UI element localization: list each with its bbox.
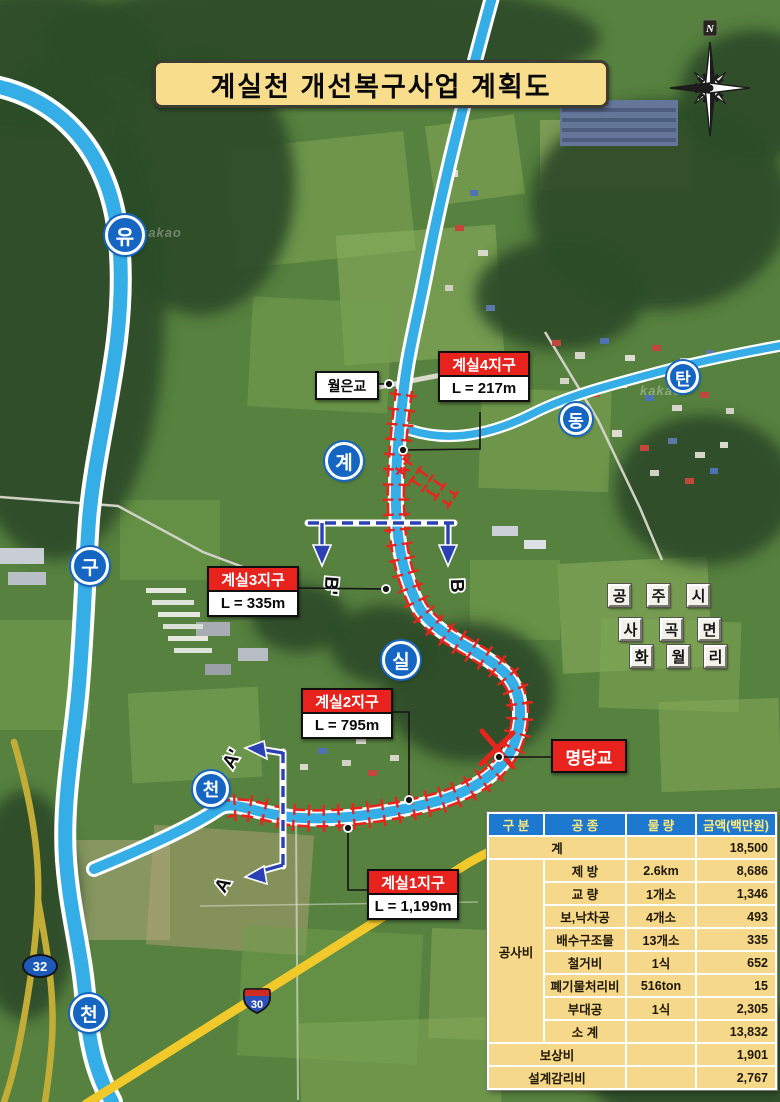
region-char: 월 — [667, 645, 690, 668]
cell-amount: 15 — [696, 974, 776, 997]
col-header: 금액(백만원) — [696, 813, 776, 836]
region-char: 공 — [608, 584, 631, 607]
cell-amount: 8,686 — [696, 859, 776, 882]
cell-qty: 2.6km — [626, 859, 696, 882]
cell-amount: 652 — [696, 951, 776, 974]
col-header: 물 량 — [626, 813, 696, 836]
cell-category: 계 — [488, 836, 626, 859]
district-label-2: 계실2지구 L = 795m — [301, 688, 393, 739]
table-row: 설계감리비 2,767 — [488, 1066, 776, 1089]
north-label: N — [705, 23, 715, 35]
col-header: 구 분 — [488, 813, 544, 836]
district-length: L = 1,199m — [367, 895, 459, 920]
cell-amount: 2,767 — [696, 1066, 776, 1089]
col-header: 공 종 — [544, 813, 626, 836]
cell-qty: 516ton — [626, 974, 696, 997]
cell-qty: 1식 — [626, 997, 696, 1020]
cell-amount: 2,305 — [696, 997, 776, 1020]
district-name: 계실4지구 — [438, 351, 530, 377]
district-name: 계실2지구 — [301, 688, 393, 714]
region-char: 화 — [630, 645, 653, 668]
cell-qty — [626, 1066, 696, 1089]
stream-circle-tan: 탄 — [667, 361, 699, 393]
district-length: L = 795m — [301, 714, 393, 739]
cell-item: 소 계 — [544, 1020, 626, 1043]
district-name: 계실1지구 — [367, 869, 459, 895]
cost-summary-table: 구 분 공 종 물 량 금액(백만원) 계 18,500 공사비 제 방 2.6… — [487, 812, 777, 1090]
stream-circle-yu: 유 — [105, 215, 145, 255]
district-label-3: 계실3지구 L = 335m — [207, 566, 299, 617]
district-label-1: 계실1지구 L = 1,199m — [367, 869, 459, 920]
stream-circle-cheon-main: 천 — [193, 771, 229, 807]
cell-qty: 4개소 — [626, 905, 696, 928]
region-char: 주 — [647, 584, 670, 607]
cell-qty: 1식 — [626, 951, 696, 974]
district-label-4: 계실4지구 L = 217m — [438, 351, 530, 402]
cell-qty — [626, 836, 696, 859]
region-char: 리 — [704, 645, 727, 668]
cell-qty — [626, 1020, 696, 1043]
section-letter-b: B — [446, 579, 467, 593]
stream-circle-sil: 실 — [382, 641, 420, 679]
svg-text:30: 30 — [251, 999, 263, 1011]
region-char: 면 — [698, 618, 721, 641]
district-length: L = 335m — [207, 592, 299, 617]
cell-item: 부대공 — [544, 997, 626, 1020]
cell-amount: 18,500 — [696, 836, 776, 859]
stream-circle-cheon-left: 천 — [70, 994, 108, 1032]
cell-item: 보,낙차공 — [544, 905, 626, 928]
cell-category: 공사비 — [488, 859, 544, 1043]
cell-category: 설계감리비 — [488, 1066, 626, 1089]
cell-amount: 13,832 — [696, 1020, 776, 1043]
stream-circle-dong: 동 — [560, 403, 592, 435]
route-30-shield: 30 — [242, 987, 272, 1015]
cell-qty — [626, 1043, 696, 1066]
route-32-shield: 32 — [22, 954, 58, 978]
table-row: 보상비 1,901 — [488, 1043, 776, 1066]
stream-circle-gye: 계 — [325, 442, 363, 480]
page-title: 계실천 개선복구사업 계획도 — [153, 60, 609, 108]
map-watermark: kakao — [140, 225, 182, 240]
bridge-label-woleun: 월은교 — [315, 371, 379, 400]
region-char: 곡 — [660, 618, 683, 641]
region-char: 시 — [687, 584, 710, 607]
table-row: 계 18,500 — [488, 836, 776, 859]
cell-item: 배수구조물 — [544, 928, 626, 951]
cell-item: 폐기물처리비 — [544, 974, 626, 997]
cell-qty: 1개소 — [626, 882, 696, 905]
plan-map-page: B' B A' A — [0, 0, 780, 1102]
cell-amount: 1,346 — [696, 882, 776, 905]
stream-circle-gu: 구 — [71, 547, 109, 585]
cell-item: 철거비 — [544, 951, 626, 974]
district-name: 계실3지구 — [207, 566, 299, 592]
cell-item: 제 방 — [544, 859, 626, 882]
district-length: L = 217m — [438, 377, 530, 402]
cell-qty: 13개소 — [626, 928, 696, 951]
bridge-label-myeongdang: 명당교 — [551, 739, 627, 773]
table-header-row: 구 분 공 종 물 량 금액(백만원) — [488, 813, 776, 836]
table-row: 공사비 제 방 2.6km 8,686 — [488, 859, 776, 882]
cell-amount: 493 — [696, 905, 776, 928]
region-char: 사 — [619, 618, 642, 641]
section-letter-b-prime: B' — [319, 575, 342, 595]
cell-amount: 1,901 — [696, 1043, 776, 1066]
cell-amount: 335 — [696, 928, 776, 951]
cell-category: 보상비 — [488, 1043, 626, 1066]
cell-item: 교 량 — [544, 882, 626, 905]
